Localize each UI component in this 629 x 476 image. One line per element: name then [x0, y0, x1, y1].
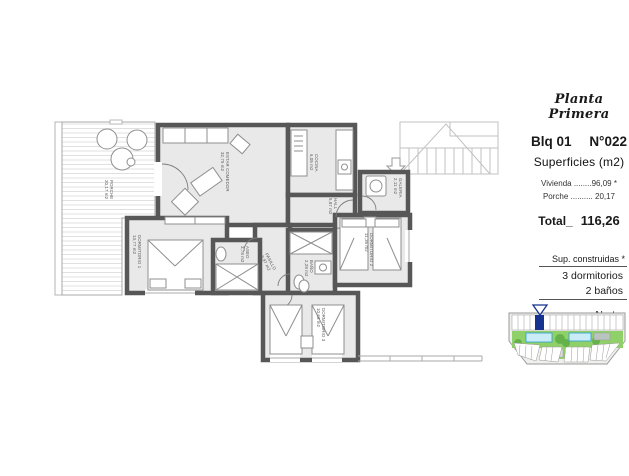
- pool-right: [569, 333, 591, 341]
- total-row: Total_ 116,26: [531, 213, 627, 228]
- highlighted-unit: [535, 315, 544, 330]
- terrace-rail: [358, 356, 482, 361]
- room-label-porche: PORCHE20,17 m2: [104, 180, 114, 200]
- block-row: Blq 01 N°022: [531, 134, 627, 149]
- built-note: Sup. construidas *: [531, 254, 627, 264]
- floor-plan-drawing: PORCHE20,17 m2 ESTAR COMEDOR32,75 m2 COC…: [50, 78, 520, 398]
- baths-count: 2 baños: [531, 285, 627, 297]
- site-plan-minimap: [506, 303, 628, 375]
- total-value: 116,26: [581, 213, 620, 228]
- surface-line-porche: Porche .......... 20,17: [531, 192, 627, 201]
- floor-plan: PORCHE20,17 m2 ESTAR COMEDOR32,75 m2 COC…: [50, 78, 520, 398]
- pool-left: [526, 333, 552, 342]
- page: PORCHE20,17 m2 ESTAR COMEDOR32,75 m2 COC…: [0, 0, 629, 476]
- plan-name: Planta Primera: [531, 92, 627, 122]
- divider: [539, 299, 627, 300]
- total-label: Total_: [538, 214, 572, 228]
- divider: [539, 266, 627, 267]
- siteplan-top-buildings: [512, 315, 623, 330]
- room-label-kitchen: COCINA6,05 m2: [309, 154, 319, 172]
- unit-number: N°022: [589, 134, 627, 149]
- surfaces-title: Superficies (m2): [531, 155, 627, 169]
- stairwell: [387, 122, 498, 175]
- surface-line-vivienda: Vivienda ........96,09 *: [531, 179, 627, 188]
- bedrooms-count: 3 dormitorios: [531, 270, 627, 282]
- block-label: Blq 01: [531, 134, 572, 149]
